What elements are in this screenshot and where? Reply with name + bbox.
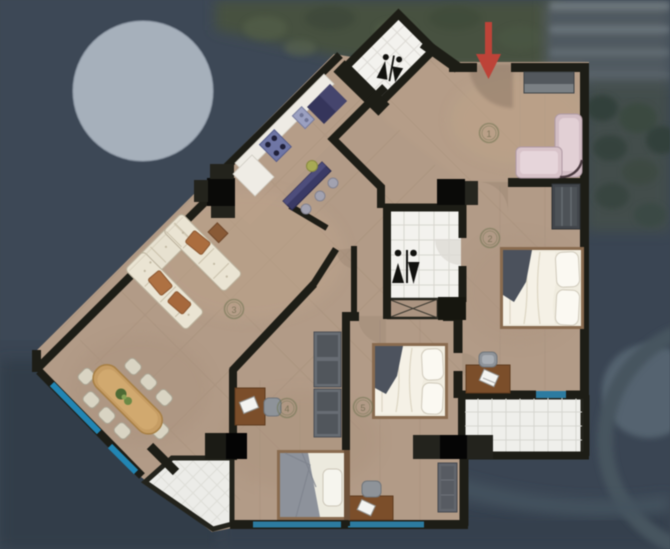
svg-text:3: 3 [231, 305, 236, 315]
svg-text:5: 5 [360, 403, 365, 413]
svg-text:1: 1 [486, 129, 491, 139]
svg-text:4: 4 [284, 404, 289, 414]
svg-text:2: 2 [487, 234, 492, 244]
